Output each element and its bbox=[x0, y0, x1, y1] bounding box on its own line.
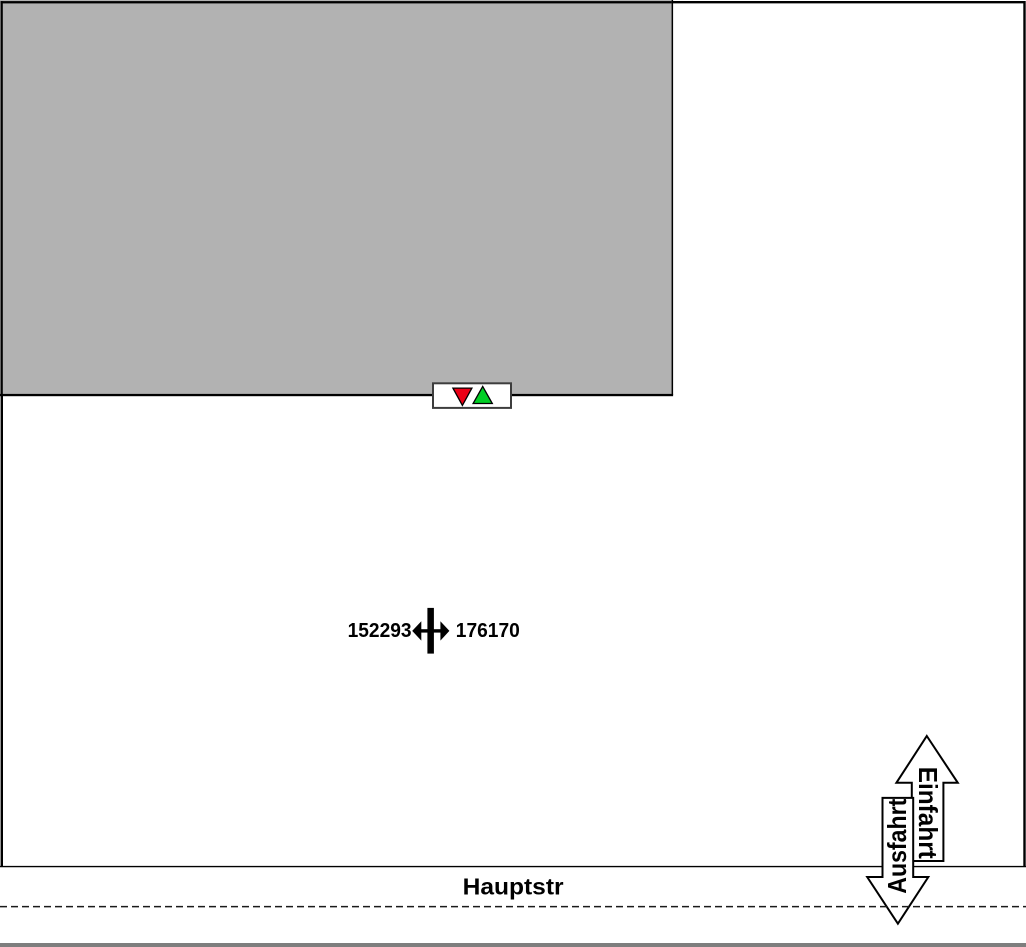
svg-text:Einfahrt: Einfahrt bbox=[913, 767, 943, 859]
svg-text:Hauptstr: Hauptstr bbox=[463, 874, 564, 900]
svg-text:Ausfahrt: Ausfahrt bbox=[882, 798, 912, 893]
svg-text:152293: 152293 bbox=[348, 620, 412, 642]
svg-text:176170: 176170 bbox=[456, 620, 520, 642]
